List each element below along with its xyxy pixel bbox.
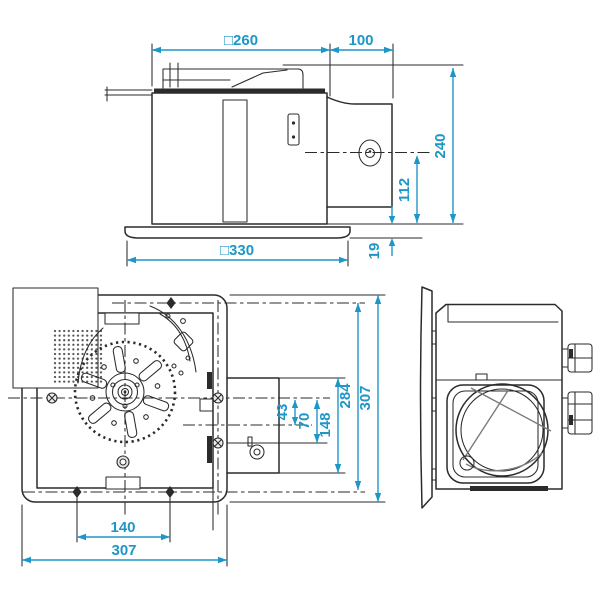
latch-notch	[200, 399, 213, 411]
dim-label-duct-length: 100	[348, 32, 373, 49]
dim-label-body-depth: 307	[357, 385, 374, 410]
dim-label-mount-pitch-vertical: 284	[337, 383, 354, 409]
dimension-mount-pitch-horizontal: 140	[77, 519, 170, 540]
dimension-duct-center-height: 112	[396, 155, 420, 223]
ceiling-grille-flange	[125, 227, 422, 238]
mounting-bracket-top	[163, 63, 303, 88]
slot-panel	[223, 100, 247, 222]
screw-icon	[117, 456, 129, 468]
body-tab	[106, 477, 140, 489]
dim-label-duct-center-offset: 43	[274, 404, 291, 421]
dimension-grille-width: □330	[127, 242, 348, 263]
dimension-grille-thickness: 19	[366, 206, 395, 259]
screw-icon	[292, 121, 295, 124]
dim-label-mount-pitch-horizontal: 140	[110, 519, 135, 536]
hinge-clip	[207, 436, 212, 463]
body-divider	[436, 374, 562, 380]
screw-icon	[213, 393, 223, 403]
dimension-overall-height: 240	[432, 68, 456, 223]
front-dimensions: □260 100 240 112 19	[127, 32, 463, 266]
screw-icon	[292, 135, 295, 138]
dimension-duct-length: 100	[330, 32, 393, 53]
dim-label-duct-lower-offset: 70	[296, 413, 313, 430]
hinge-clip	[207, 372, 212, 389]
technical-drawing-page: □260 100 240 112 19	[0, 0, 600, 600]
hanger-bracket-lower	[562, 392, 592, 434]
body-tab	[105, 313, 139, 324]
grille-flange-side	[421, 287, 433, 508]
dim-label-grille-width: □330	[220, 242, 254, 259]
dim-label-duct-center-height: 112	[396, 178, 413, 202]
dimension-duct-center-offset: 43	[274, 400, 298, 425]
dimension-body-depth: 307	[357, 295, 381, 502]
dimension-body-width: □260	[152, 32, 330, 53]
screw-icon	[213, 438, 223, 448]
dim-label-body-width-plan: 307	[111, 542, 136, 559]
front-view	[105, 63, 463, 238]
duct-opening	[456, 384, 548, 476]
power-lead	[105, 87, 152, 101]
hanger-bracket-upper	[562, 344, 592, 372]
dim-label-grille-thickness: 19	[366, 243, 383, 260]
terminal-bracket	[288, 114, 299, 145]
mount-hole-diamond	[167, 297, 176, 309]
dimension-body-width-plan: 307	[22, 542, 227, 563]
dim-label-body-width: □260	[224, 32, 258, 49]
bottom-rail	[470, 486, 548, 491]
drawing-canvas: □260 100 240 112 19	[0, 0, 600, 600]
dim-label-duct-opening: 148	[317, 412, 334, 437]
side-view	[421, 287, 593, 508]
dim-label-overall-height: 240	[432, 133, 449, 158]
screw-icon	[47, 393, 57, 403]
screw-icon	[250, 445, 264, 459]
